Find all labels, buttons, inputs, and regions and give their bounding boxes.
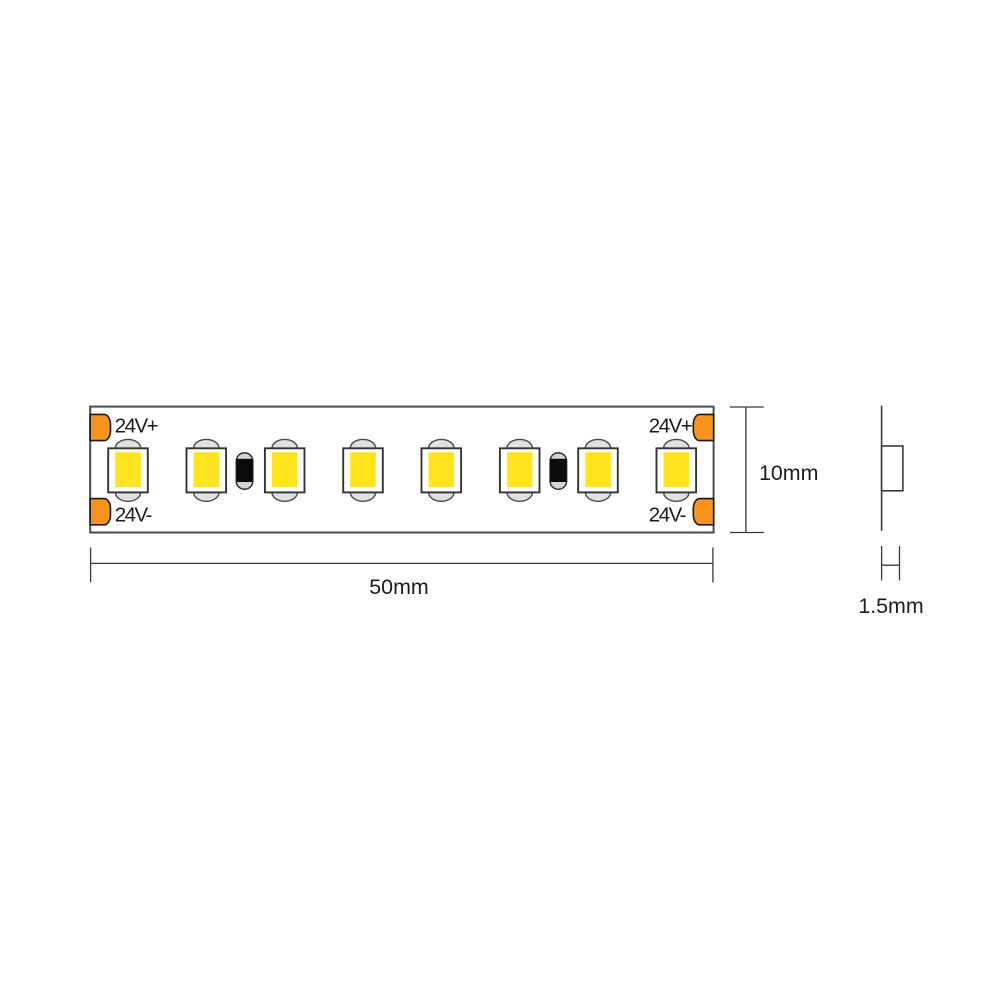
svg-text:24V+: 24V+ bbox=[115, 414, 158, 437]
svg-text:10mm: 10mm bbox=[759, 461, 818, 485]
svg-text:24V-: 24V- bbox=[649, 504, 686, 527]
svg-text:24V+: 24V+ bbox=[649, 415, 692, 438]
svg-text:1.5mm: 1.5mm bbox=[858, 594, 923, 618]
svg-text:24V-: 24V- bbox=[115, 504, 152, 527]
svg-text:50mm: 50mm bbox=[369, 575, 428, 599]
